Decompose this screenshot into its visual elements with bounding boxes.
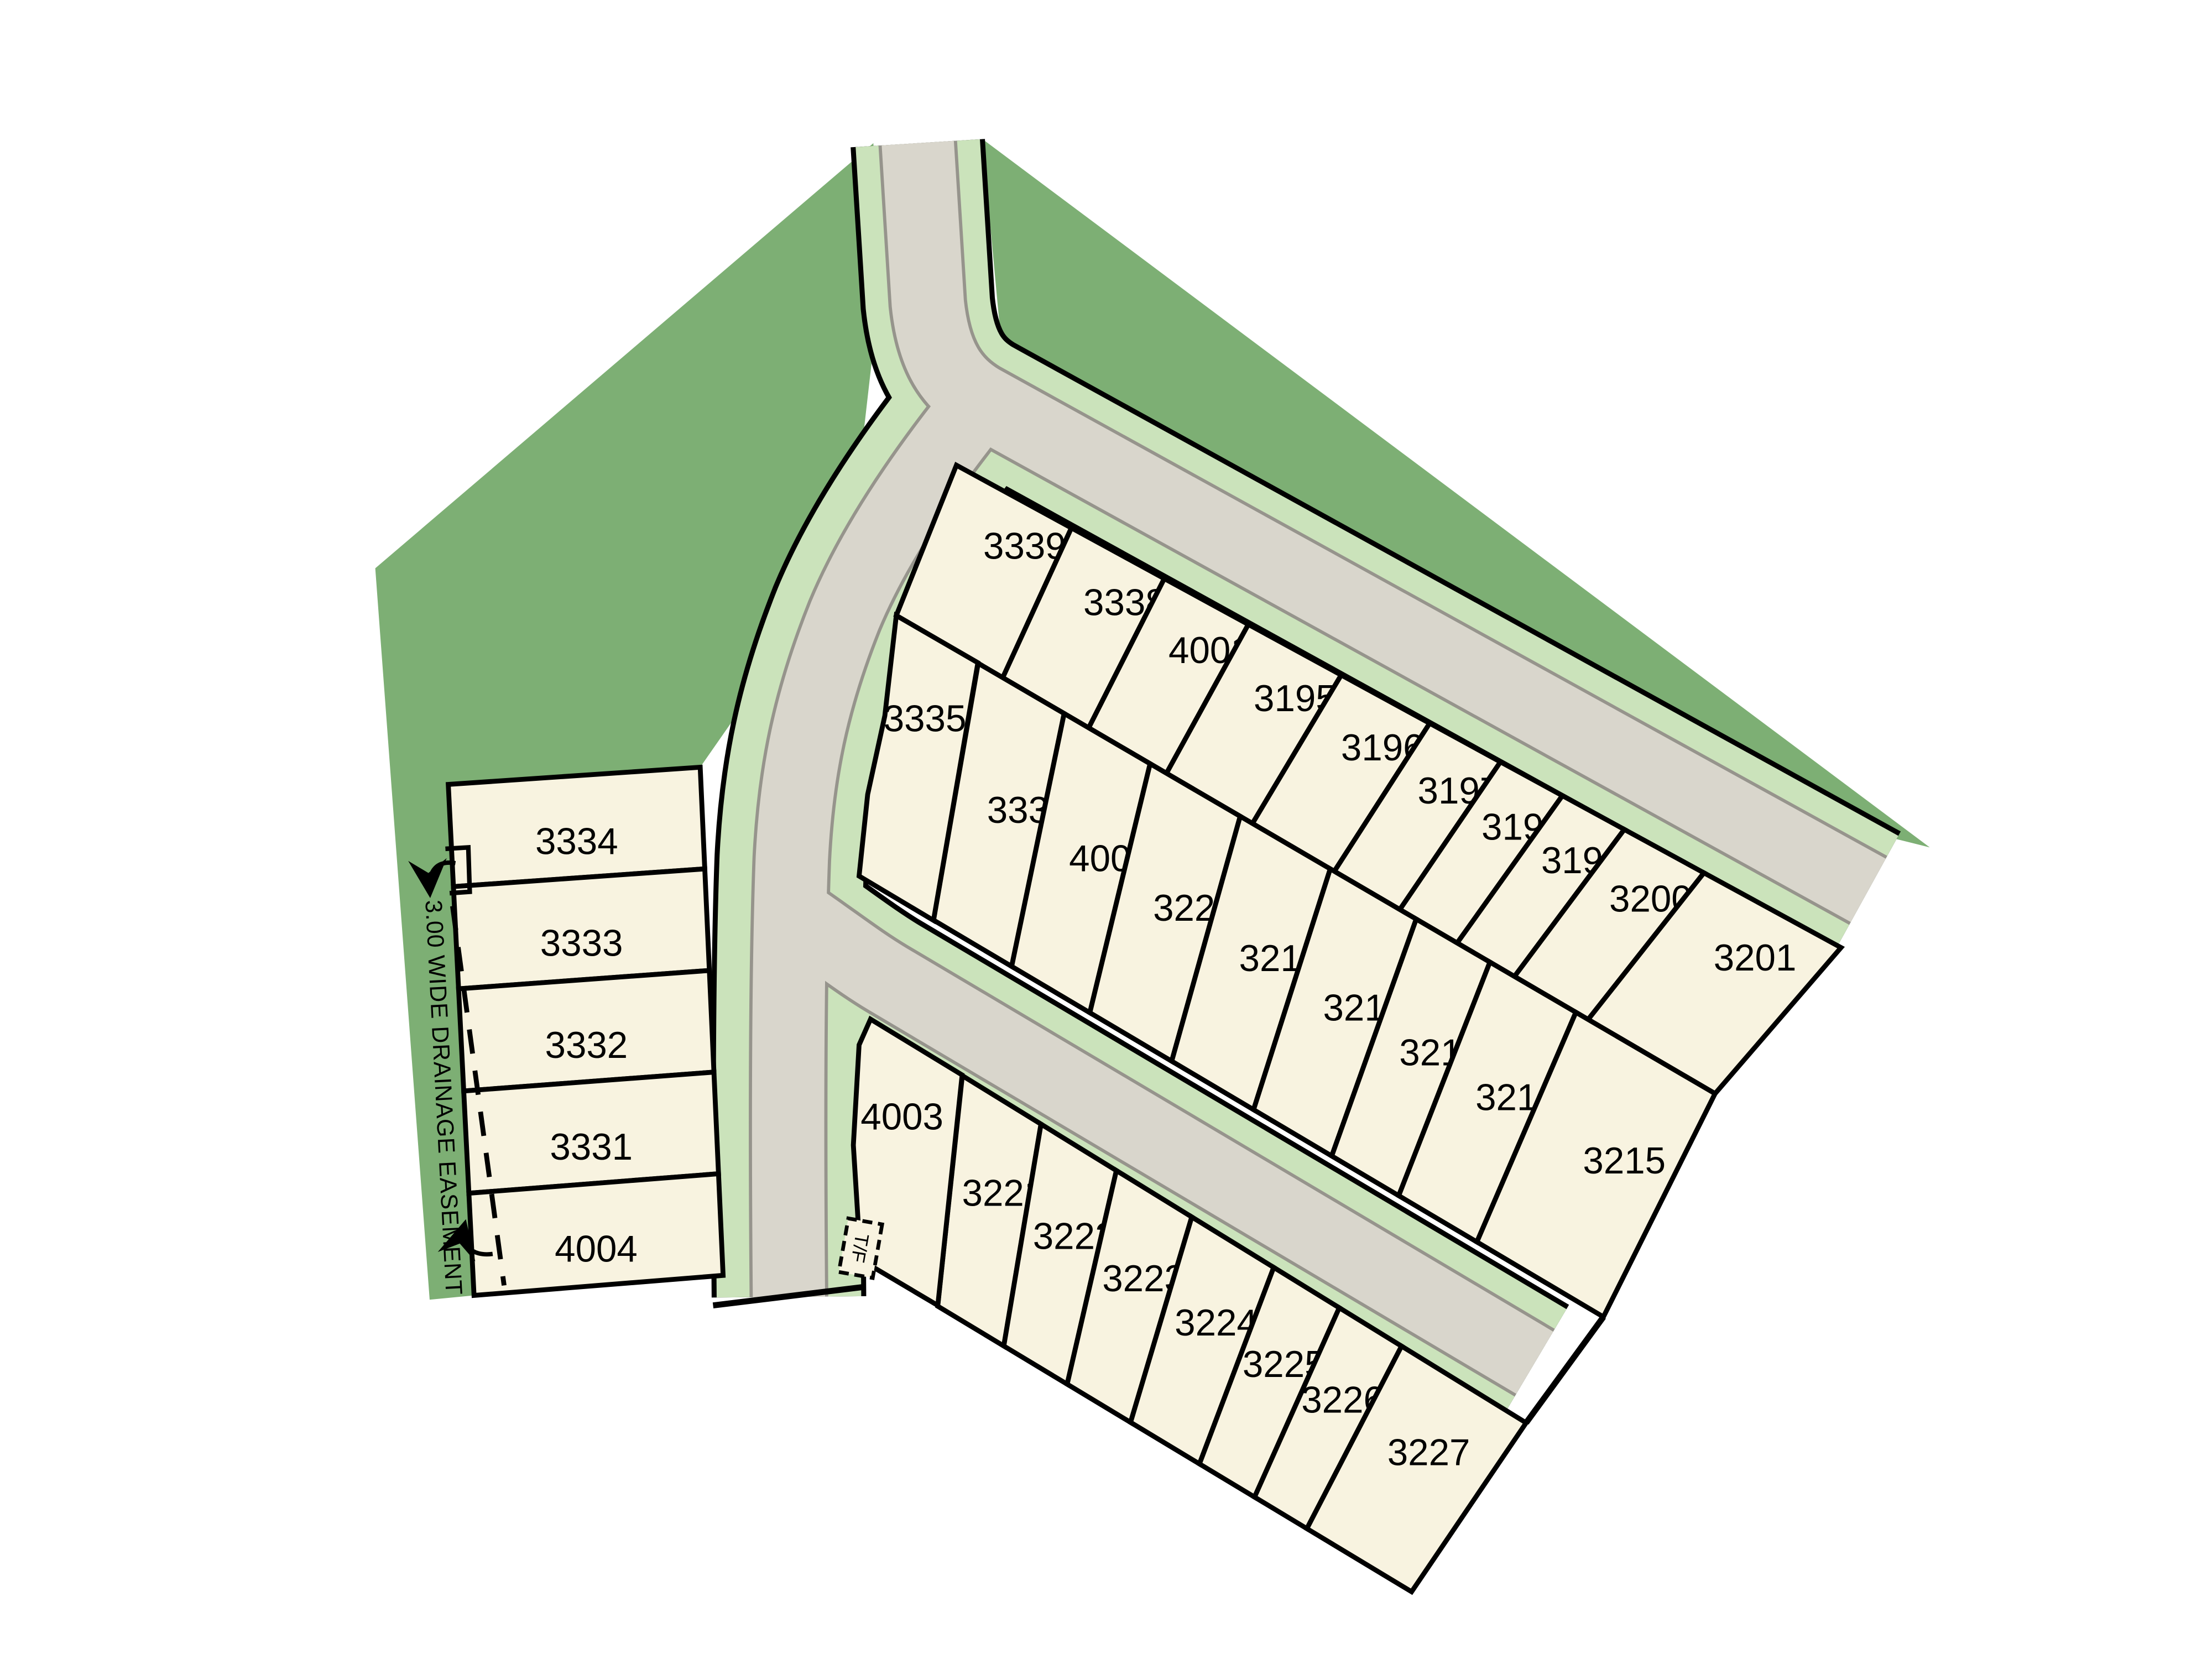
lot-number-label: 4004 [555,1228,638,1270]
plat-map-page: 3339333840013195319631973198319932003201… [0,0,2212,1659]
lot-number-label: 3215 [1583,1140,1666,1182]
lot-number-label: 3333 [540,923,623,964]
lot-number-label: 3331 [550,1126,633,1168]
lot-number-label: 4003 [860,1096,943,1138]
lot-number-label: 3201 [1714,937,1797,979]
lot-number-label: 3335 [884,698,967,740]
lot-number-label: 3339 [983,525,1066,567]
lot-number-label: 3227 [1387,1432,1470,1473]
subdivision-plat-map: 3339333840013195319631973198319932003201… [0,0,2212,1659]
lot-number-label: 3334 [535,821,618,862]
lot-number-label: 3332 [545,1025,628,1066]
